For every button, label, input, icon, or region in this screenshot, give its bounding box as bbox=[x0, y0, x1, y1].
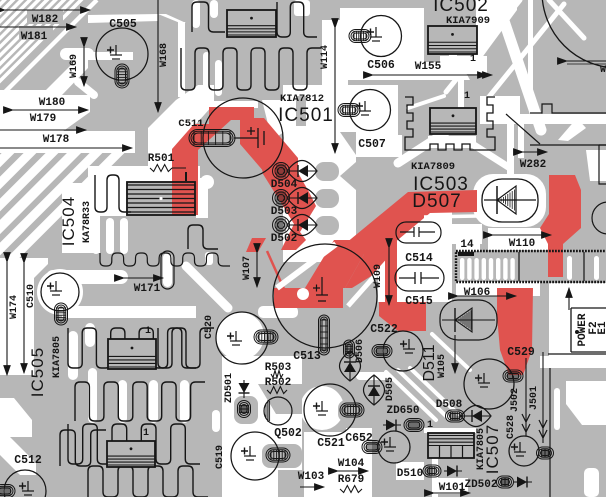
svg-text:KIA7805: KIA7805 bbox=[52, 336, 63, 378]
svg-text:W178: W178 bbox=[43, 134, 70, 146]
svg-text:C522: C522 bbox=[370, 323, 398, 336]
svg-text:W105: W105 bbox=[437, 354, 448, 378]
svg-text:C506: C506 bbox=[367, 59, 395, 72]
svg-text:W: W bbox=[600, 65, 606, 76]
svg-text:C520: C520 bbox=[204, 315, 215, 339]
svg-text:W182: W182 bbox=[32, 14, 58, 26]
svg-text:1: 1 bbox=[143, 428, 149, 439]
svg-text:ZD501: ZD501 bbox=[224, 373, 235, 403]
svg-text:W107: W107 bbox=[242, 256, 253, 280]
svg-text:D508: D508 bbox=[436, 399, 463, 411]
svg-text:1: 1 bbox=[427, 420, 433, 431]
svg-text:D510: D510 bbox=[397, 468, 423, 480]
svg-text:W1: W1 bbox=[0, 294, 4, 306]
svg-text:W114: W114 bbox=[320, 45, 331, 69]
svg-text:W155: W155 bbox=[415, 61, 442, 73]
svg-text:C513: C513 bbox=[293, 350, 321, 363]
svg-text:W180: W180 bbox=[39, 97, 65, 109]
svg-text:1: 1 bbox=[464, 91, 470, 102]
svg-text:W109: W109 bbox=[373, 264, 384, 288]
svg-text:14: 14 bbox=[460, 239, 474, 251]
svg-text:J502: J502 bbox=[510, 388, 521, 412]
svg-text:KIA7809: KIA7809 bbox=[411, 161, 455, 173]
svg-text:D505: D505 bbox=[385, 377, 396, 401]
svg-text:D507: D507 bbox=[412, 191, 461, 212]
svg-text:R502: R502 bbox=[265, 377, 291, 389]
svg-text:C507: C507 bbox=[358, 138, 386, 151]
svg-text:IC502: IC502 bbox=[433, 0, 489, 16]
svg-text:W110: W110 bbox=[509, 238, 535, 250]
svg-text:C515: C515 bbox=[405, 295, 433, 308]
svg-text:KIA7805: KIA7805 bbox=[476, 428, 487, 470]
svg-text:C514: C514 bbox=[405, 252, 433, 265]
svg-text:C510: C510 bbox=[26, 284, 37, 308]
svg-text:R679: R679 bbox=[338, 474, 364, 486]
svg-text:W174: W174 bbox=[9, 295, 20, 319]
svg-text:D502: D502 bbox=[271, 233, 297, 245]
svg-text:KA78R33: KA78R33 bbox=[82, 201, 93, 243]
svg-text:W168: W168 bbox=[159, 43, 170, 67]
svg-text:W181: W181 bbox=[21, 31, 48, 43]
svg-text:W103: W103 bbox=[298, 471, 325, 483]
svg-text:KIA7812: KIA7812 bbox=[280, 93, 324, 105]
svg-text:IC504: IC504 bbox=[59, 196, 78, 246]
svg-text:C528: C528 bbox=[506, 415, 517, 439]
svg-text:D511: D511 bbox=[421, 344, 438, 381]
svg-text:C521: C521 bbox=[317, 437, 345, 450]
svg-text:IC501: IC501 bbox=[278, 105, 334, 126]
svg-text:C505: C505 bbox=[109, 18, 137, 31]
svg-text:ZD650: ZD650 bbox=[386, 405, 419, 417]
svg-text:Q502: Q502 bbox=[274, 427, 302, 440]
svg-text:E1: E1 bbox=[597, 321, 606, 335]
svg-text:D504: D504 bbox=[271, 179, 298, 191]
svg-text:W282: W282 bbox=[520, 159, 546, 171]
svg-text:R501: R501 bbox=[148, 153, 175, 165]
svg-text:W171: W171 bbox=[134, 283, 161, 295]
svg-text:D503: D503 bbox=[271, 206, 298, 218]
svg-text:C519: C519 bbox=[215, 445, 226, 469]
svg-text:1: 1 bbox=[470, 54, 476, 65]
svg-text:W104: W104 bbox=[338, 458, 365, 470]
svg-text:W106: W106 bbox=[464, 287, 490, 299]
svg-text:1: 1 bbox=[145, 326, 151, 337]
svg-text:C511: C511 bbox=[178, 118, 203, 130]
svg-text:C512: C512 bbox=[14, 454, 42, 467]
svg-text:W179: W179 bbox=[30, 113, 56, 125]
svg-text:IC505: IC505 bbox=[28, 347, 47, 397]
svg-text:KIA7909: KIA7909 bbox=[446, 15, 490, 27]
svg-text:C652: C652 bbox=[345, 432, 373, 445]
svg-text:ZD502: ZD502 bbox=[464, 479, 497, 491]
svg-text:W169: W169 bbox=[69, 54, 80, 78]
svg-text:W101: W101 bbox=[439, 482, 466, 494]
svg-text:D506: D506 bbox=[355, 339, 366, 363]
svg-text:C529: C529 bbox=[507, 346, 535, 359]
svg-text:J501: J501 bbox=[529, 386, 540, 410]
